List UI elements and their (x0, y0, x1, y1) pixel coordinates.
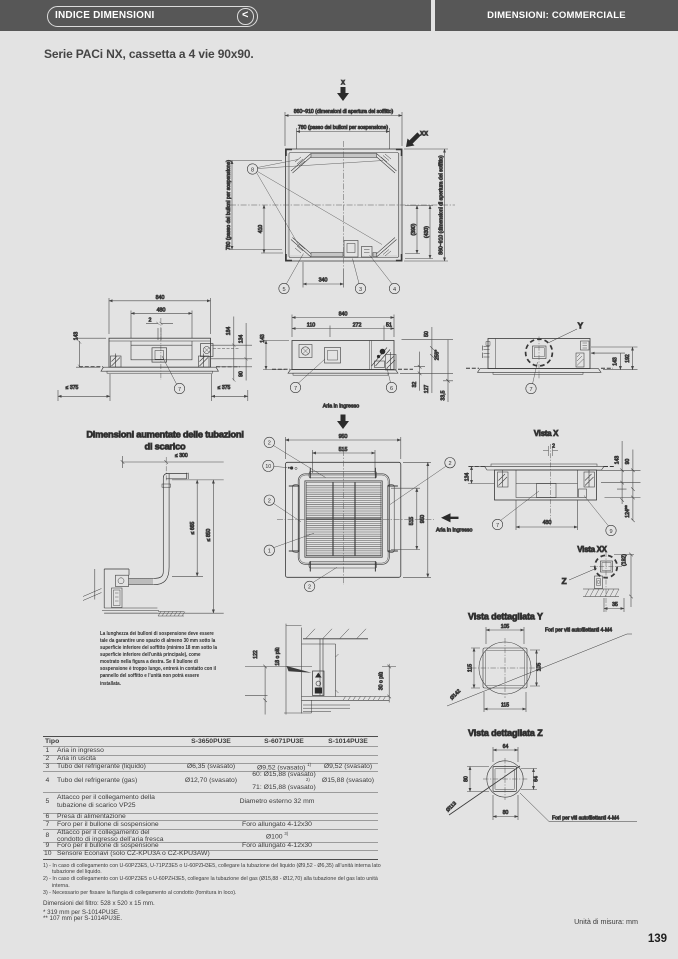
svg-text:80: 80 (503, 810, 509, 816)
svg-text:51: 51 (386, 323, 392, 329)
svg-text:≤ 850: ≤ 850 (206, 528, 212, 541)
svg-text:860~910 (dimensioni di apertur: 860~910 (dimensioni di apertura del soff… (294, 109, 394, 115)
svg-text:(192): (192) (622, 554, 628, 566)
svg-text:Fori per viti autofilettanti 4: Fori per viti autofilettanti 4-M4 (545, 628, 612, 634)
svg-text:Dimensioni aumentate delle tub: Dimensioni aumentate delle tubazioni (86, 430, 243, 440)
svg-text:515: 515 (409, 517, 415, 526)
svg-text:950: 950 (420, 515, 426, 524)
svg-text:7: 7 (294, 386, 297, 392)
svg-text:272: 272 (353, 323, 362, 329)
svg-text:127: 127 (424, 385, 430, 394)
svg-text:780 (passo dei bulloni per sos: 780 (passo dei bulloni per sospensione) (226, 160, 232, 250)
svg-text:Ø142: Ø142 (449, 688, 462, 701)
svg-text:Fori per viti autofilettanti 4: Fori per viti autofilettanti 4-M4 (552, 816, 619, 822)
svg-text:950: 950 (339, 434, 348, 440)
svg-text:480: 480 (157, 307, 166, 313)
svg-text:Vista dettagliata Z: Vista dettagliata Z (468, 728, 543, 738)
svg-text:2: 2 (552, 444, 555, 450)
svg-text:30 o più: 30 o più (379, 672, 385, 690)
svg-text:≤ 665: ≤ 665 (190, 521, 196, 534)
svg-text:Z: Z (562, 576, 567, 586)
svg-text:115: 115 (501, 703, 509, 709)
svg-text:5: 5 (282, 287, 285, 293)
svg-text:1: 1 (268, 549, 271, 555)
svg-text:110: 110 (307, 323, 315, 329)
svg-text:Vista dettagliata Y: Vista dettagliata Y (468, 612, 543, 622)
svg-text:35: 35 (612, 602, 618, 608)
svg-text:7: 7 (178, 387, 181, 393)
svg-text:64: 64 (503, 744, 509, 750)
svg-text:≤ 375: ≤ 375 (66, 385, 79, 391)
svg-text:6: 6 (390, 386, 393, 392)
svg-text:410: 410 (258, 225, 264, 234)
svg-text:Vista XX: Vista XX (577, 545, 607, 554)
svg-text:4: 4 (393, 287, 396, 293)
svg-text:480: 480 (543, 520, 552, 526)
svg-text:2: 2 (308, 585, 311, 591)
svg-text:2: 2 (268, 441, 271, 447)
svg-text:143: 143 (615, 456, 621, 465)
svg-text:143: 143 (260, 334, 266, 343)
svg-text:2: 2 (268, 499, 271, 505)
svg-text:50: 50 (424, 331, 430, 337)
svg-text:90: 90 (239, 371, 245, 377)
svg-text:840: 840 (156, 295, 165, 301)
svg-text:33,5: 33,5 (441, 390, 447, 400)
svg-text:Ø113: Ø113 (445, 801, 458, 814)
svg-text:780 (passo dei bulloni per sos: 780 (passo dei bulloni per sospensione) (298, 125, 388, 131)
svg-text:≤ 300: ≤ 300 (175, 453, 188, 459)
svg-text:2: 2 (448, 461, 451, 467)
svg-text:di scarico: di scarico (145, 442, 186, 452)
svg-text:105: 105 (501, 624, 510, 630)
svg-text:2: 2 (149, 317, 152, 323)
svg-text:143: 143 (74, 332, 80, 341)
svg-text:80: 80 (464, 776, 470, 782)
svg-text:3: 3 (359, 287, 362, 293)
svg-text:184: 184 (226, 327, 232, 336)
svg-text:840: 840 (339, 312, 348, 318)
svg-text:10: 10 (265, 464, 271, 470)
svg-text:X: X (341, 81, 345, 87)
svg-text:32: 32 (412, 382, 418, 388)
svg-text:7: 7 (496, 523, 499, 529)
svg-text:Y: Y (578, 321, 584, 331)
svg-text:256*: 256* (435, 350, 441, 360)
svg-text:90: 90 (625, 459, 631, 465)
svg-text:192: 192 (625, 354, 631, 363)
svg-text:Aria in ingresso: Aria in ingresso (323, 404, 360, 410)
svg-text:Vista X: Vista X (534, 429, 559, 438)
svg-text:340: 340 (319, 278, 328, 284)
svg-text:9: 9 (609, 529, 612, 535)
svg-text:515: 515 (339, 447, 348, 453)
svg-text:134: 134 (465, 473, 471, 482)
svg-text:115: 115 (468, 664, 474, 672)
svg-text:≤ 375: ≤ 375 (218, 385, 231, 391)
svg-text:(430): (430) (424, 226, 430, 238)
svg-text:124**: 124** (625, 505, 631, 517)
svg-text:134: 134 (239, 335, 245, 344)
svg-text:18 o più: 18 o più (275, 647, 281, 665)
svg-text:Aria in ingresso: Aria in ingresso (436, 528, 473, 534)
svg-text:XX: XX (420, 132, 428, 138)
svg-text:8: 8 (251, 167, 254, 173)
svg-text:122: 122 (253, 650, 259, 659)
svg-text:64: 64 (534, 776, 540, 782)
svg-text:(390): (390) (411, 223, 417, 235)
svg-text:860~910 (dimensioni di apertur: 860~910 (dimensioni di apertura del soff… (439, 155, 445, 255)
svg-text:143: 143 (613, 357, 619, 366)
svg-text:7: 7 (529, 387, 532, 393)
